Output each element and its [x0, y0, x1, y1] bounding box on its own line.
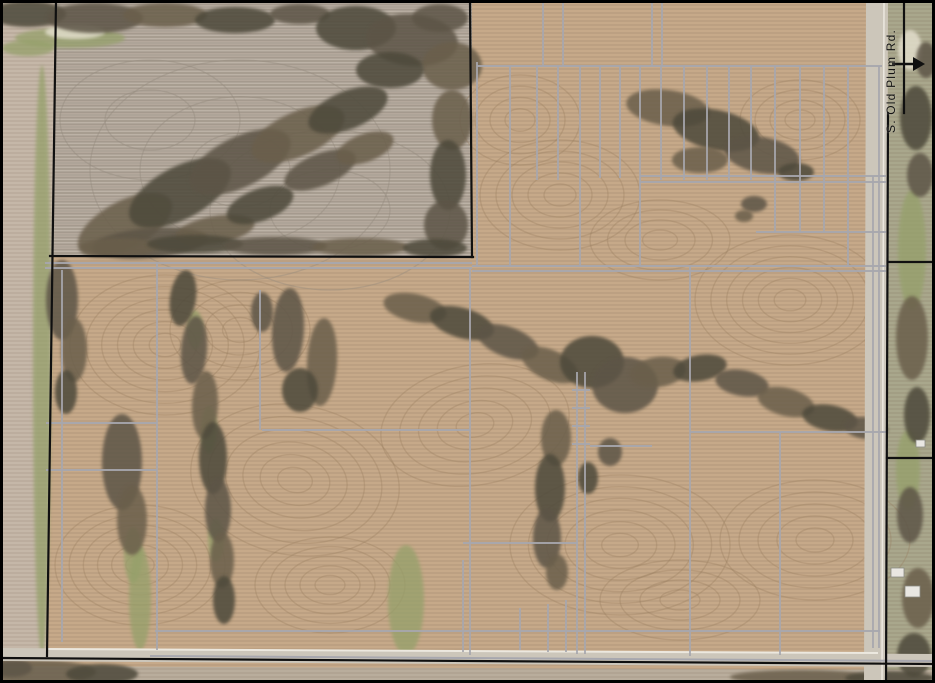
road-label: S. Old Plum Rd. [884, 29, 898, 133]
map-canvas [0, 0, 935, 683]
aerial-map: S. Old Plum Rd. [0, 0, 935, 683]
